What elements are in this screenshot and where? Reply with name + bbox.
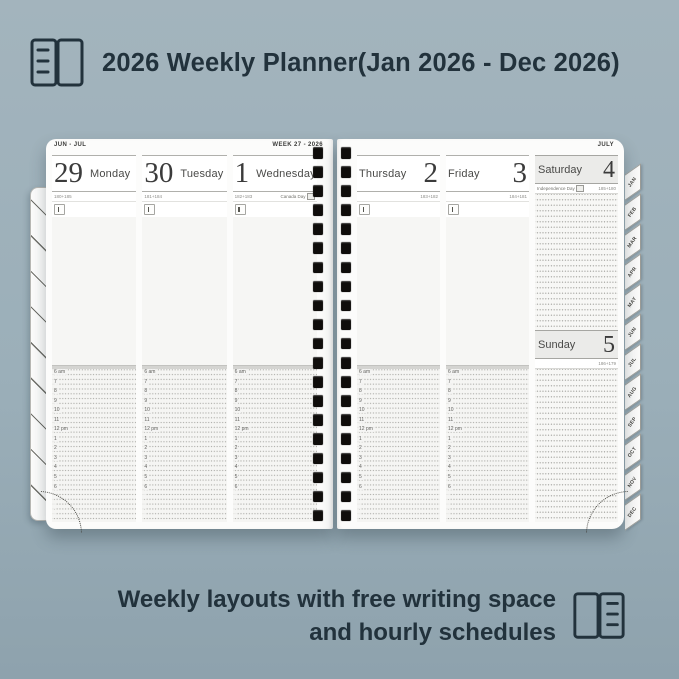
hour-label: 3 — [448, 455, 452, 461]
hour-label: 9 — [359, 398, 363, 404]
hour-label: 6 am — [235, 369, 247, 375]
hour-label: 7 — [235, 379, 239, 385]
binding-hole-icon — [313, 319, 323, 331]
date-number: 29 — [54, 159, 83, 188]
binding-hole-icon — [313, 395, 323, 407]
free-writing-area — [142, 217, 226, 365]
hour-label — [235, 503, 236, 509]
hour-row: 11 — [52, 417, 136, 427]
hour-label: 1 — [144, 436, 148, 442]
date-number: 30 — [144, 159, 173, 188]
hour-row: 6 am — [142, 369, 226, 379]
hour-label: 8 — [448, 388, 452, 394]
hour-label — [448, 493, 449, 499]
binding-hole-icon — [313, 185, 323, 197]
binding-hole-icon — [313, 166, 323, 178]
binding-hole-icon — [341, 433, 351, 445]
hour-row: 7 — [446, 379, 529, 389]
open-book-icon — [28, 36, 86, 90]
binding-hole-icon — [313, 357, 323, 369]
hour-row: 3 — [233, 455, 317, 465]
hour-label — [144, 512, 145, 518]
hour-label: 12 pm — [235, 426, 250, 432]
footer-line-1: Weekly layouts with free writing space — [118, 583, 556, 616]
open-book-icon — [571, 589, 627, 643]
hour-row: 9 — [52, 398, 136, 408]
hour-label: 10 — [448, 407, 455, 413]
flag-icon — [576, 185, 584, 192]
binding-hole-icon — [313, 472, 323, 484]
binding-hole-icon — [341, 300, 351, 312]
hour-row: 1 — [142, 436, 226, 446]
footer-caption: Weekly layouts with free writing space a… — [118, 583, 556, 649]
hour-label: 1 — [235, 436, 239, 442]
binding-hole-icon — [313, 281, 323, 293]
hour-row: 11 — [446, 417, 529, 427]
hour-label: 11 — [359, 417, 365, 423]
sunday-header: Sunday 5 — [535, 330, 618, 359]
hour-label — [359, 493, 360, 499]
hour-label: 7 — [359, 379, 363, 385]
hour-label — [235, 493, 236, 499]
day-name: Wednesday — [256, 168, 316, 180]
hour-label: 2 — [359, 445, 363, 451]
binding-hole-icon — [341, 376, 351, 388]
hour-row: 6 — [446, 484, 529, 494]
spiral-binding-right — [341, 147, 351, 529]
date-number: 4 — [603, 158, 615, 182]
hour-row: 6 — [142, 484, 226, 494]
footer-line-2: and hourly schedules — [118, 616, 556, 649]
hour-row: 7 — [52, 379, 136, 389]
hourly-schedule: 6 am 7 8 9 10 11 12 pm 1 2 3 4 5 6 — [233, 369, 317, 522]
day-column: 2 Thursday 183+182 6 am 7 8 9 10 11 12 p… — [357, 155, 440, 522]
hour-row: 10 — [233, 407, 317, 417]
binding-hole-icon — [313, 242, 323, 254]
hour-row: 6 am — [52, 369, 136, 379]
hour-row — [446, 512, 529, 522]
hour-label: 8 — [235, 388, 239, 394]
day-count: 185+180 — [598, 186, 616, 191]
hour-label: 12 pm — [448, 426, 463, 432]
hour-label: 7 — [144, 379, 148, 385]
hour-row: 1 — [446, 436, 529, 446]
binding-hole-icon — [313, 338, 323, 350]
hour-row: 4 — [357, 464, 440, 474]
month-range-label: JUN - JUL — [54, 142, 86, 148]
binding-hole-icon — [341, 472, 351, 484]
binding-hole-icon — [341, 319, 351, 331]
day-column: 3 Friday 184+181 6 am 7 8 9 10 11 12 pm … — [446, 155, 529, 522]
date-number: 5 — [603, 333, 615, 357]
hour-row: 6 am — [233, 369, 317, 379]
binding-hole-icon — [313, 433, 323, 445]
hour-row: 9 — [233, 398, 317, 408]
hour-row: 6 — [233, 484, 317, 494]
hour-row: 12 pm — [357, 426, 440, 436]
day-count: 181+184 — [144, 194, 162, 199]
hour-label: 2 — [144, 445, 148, 451]
hour-label — [359, 512, 360, 518]
hour-label: 1 — [448, 436, 452, 442]
page-edge-stripes — [30, 187, 47, 521]
binding-hole-icon — [341, 510, 351, 522]
hour-row — [142, 493, 226, 503]
hour-row: 6 am — [446, 369, 529, 379]
hour-label: 8 — [359, 388, 363, 394]
hour-row: 4 — [233, 464, 317, 474]
hour-label: 4 — [448, 464, 452, 470]
binding-hole-icon — [341, 281, 351, 293]
day-column: 30 Tuesday 181+184 6 am 7 8 9 10 11 12 p… — [142, 155, 226, 522]
hour-row: 2 — [142, 445, 226, 455]
saturday-header: Saturday 4 — [535, 155, 618, 184]
hour-row: 11 — [233, 417, 317, 427]
hour-label — [235, 512, 236, 518]
hour-label: 9 — [448, 398, 452, 404]
hour-row: 8 — [446, 388, 529, 398]
note-box-icon — [144, 204, 155, 215]
day-column: 29 Monday 180+185 6 am 7 8 9 10 11 12 pm… — [52, 155, 136, 522]
hour-label: 10 — [144, 407, 151, 413]
day-name: Thursday — [359, 168, 406, 180]
day-subrow: 183+182 — [357, 192, 440, 202]
binding-hole-icon — [341, 166, 351, 178]
day-column: 1 Wednesday 182+183 Canada Day 6 am 7 8 … — [233, 155, 317, 522]
binding-hole-icon — [313, 376, 323, 388]
hour-row — [357, 512, 440, 522]
hour-row — [446, 503, 529, 513]
hour-row: 10 — [357, 407, 440, 417]
day-name: Sunday — [538, 339, 575, 351]
day-name: Saturday — [538, 164, 582, 176]
day-count: 183+182 — [420, 194, 438, 199]
footer: Weekly layouts with free writing space a… — [118, 583, 627, 649]
hour-label — [144, 493, 145, 499]
page-title: 2026 Weekly Planner(Jan 2026 - Dec 2026) — [102, 49, 620, 78]
hour-label — [448, 503, 449, 509]
binding-hole-icon — [341, 338, 351, 350]
day-header: 29 Monday — [52, 155, 136, 192]
hour-label: 11 — [448, 417, 454, 423]
binding-hole-icon — [313, 453, 323, 465]
hour-row: 8 — [357, 388, 440, 398]
hour-label — [144, 503, 145, 509]
hour-label: 10 — [54, 407, 61, 413]
date-number: 3 — [513, 159, 528, 188]
binding-hole-icon — [313, 510, 323, 522]
hour-row: 2 — [446, 445, 529, 455]
hour-row: 5 — [233, 474, 317, 484]
day-name: Friday — [448, 168, 480, 180]
month-label: JULY — [598, 142, 614, 148]
hour-label: 5 — [359, 474, 363, 480]
binding-hole-icon — [341, 414, 351, 426]
hour-row: 11 — [357, 417, 440, 427]
day-count: 182+183 — [235, 194, 253, 199]
hour-label — [359, 503, 360, 509]
hour-label: 12 pm — [359, 426, 374, 432]
free-writing-area — [446, 217, 529, 365]
hour-row: 8 — [52, 388, 136, 398]
hour-label: 10 — [235, 407, 242, 413]
day-subrow: 182+183 Canada Day — [233, 192, 317, 202]
header: 2026 Weekly Planner(Jan 2026 - Dec 2026) — [28, 36, 620, 90]
binding-hole-icon — [341, 262, 351, 274]
hour-label: 3 — [144, 455, 148, 461]
hour-label: 6 am — [359, 369, 371, 375]
day-header: 2 Thursday — [357, 155, 440, 192]
hour-row: 9 — [357, 398, 440, 408]
hour-row: 2 — [233, 445, 317, 455]
holiday-text: Canada Day — [280, 194, 305, 199]
hour-row — [357, 503, 440, 513]
date-number: 2 — [424, 159, 439, 188]
day-count: 184+181 — [509, 194, 527, 199]
planner-left-page: JUN - JUL WEEK 27 - 2026 29 Monday 180+1… — [46, 139, 333, 529]
hourly-schedule: 6 am 7 8 9 10 11 12 pm 1 2 3 4 5 6 — [357, 369, 440, 522]
hour-row: 5 — [52, 474, 136, 484]
hour-row: 5 — [142, 474, 226, 484]
binding-hole-icon — [341, 204, 351, 216]
hour-label: 9 — [54, 398, 58, 404]
saturday-subrow: Independence Day 185+180 — [535, 184, 618, 194]
binding-hole-icon — [313, 204, 323, 216]
hour-row: 3 — [446, 455, 529, 465]
binding-hole-icon — [341, 223, 351, 235]
binding-hole-icon — [341, 242, 351, 254]
hour-label: 3 — [54, 455, 58, 461]
hour-label: 6 — [448, 484, 452, 490]
spiral-binding-left — [313, 147, 323, 529]
hour-label — [448, 512, 449, 518]
right-day-columns: 2 Thursday 183+182 6 am 7 8 9 10 11 12 p… — [357, 155, 618, 522]
hour-label: 5 — [448, 474, 452, 480]
hour-row: 4 — [446, 464, 529, 474]
hour-row: 7 — [357, 379, 440, 389]
binding-hole-icon — [341, 357, 351, 369]
hour-row: 9 — [446, 398, 529, 408]
binding-hole-icon — [341, 185, 351, 197]
hour-label: 11 — [235, 417, 241, 423]
hour-row: 4 — [142, 464, 226, 474]
binding-hole-icon — [341, 147, 351, 159]
day-header: 30 Tuesday — [142, 155, 226, 192]
hour-row — [142, 503, 226, 513]
binding-hole-icon — [313, 147, 323, 159]
hour-row: 12 pm — [142, 426, 226, 436]
day-subrow: 184+181 — [446, 192, 529, 202]
binding-hole-icon — [313, 414, 323, 426]
date-number: 1 — [235, 159, 250, 188]
binding-hole-icon — [313, 491, 323, 503]
free-writing-area — [357, 217, 440, 365]
hour-label: 2 — [235, 445, 239, 451]
hour-label: 8 — [54, 388, 58, 394]
binding-hole-icon — [313, 223, 323, 235]
hour-label: 4 — [359, 464, 363, 470]
hour-row: 3 — [52, 455, 136, 465]
sunday-subrow: 186+179 — [535, 359, 618, 369]
binding-hole-icon — [341, 453, 351, 465]
hour-row: 12 pm — [52, 426, 136, 436]
free-writing-area — [233, 217, 317, 365]
hour-row: 1 — [52, 436, 136, 446]
hour-label: 5 — [54, 474, 58, 480]
hour-row — [233, 512, 317, 522]
hour-label: 1 — [54, 436, 58, 442]
hour-row: 10 — [446, 407, 529, 417]
hour-label: 6 — [235, 484, 239, 490]
hour-label: 7 — [448, 379, 452, 385]
hour-label: 9 — [144, 398, 148, 404]
hour-row — [142, 512, 226, 522]
binding-hole-icon — [313, 300, 323, 312]
day-count: 180+185 — [54, 194, 72, 199]
day-header: 1 Wednesday — [233, 155, 317, 192]
hour-row: 8 — [142, 388, 226, 398]
hour-row: 5 — [446, 474, 529, 484]
day-count: 186+179 — [598, 361, 616, 366]
weekend-column: Saturday 4 Independence Day 185+180 Sund… — [535, 155, 618, 522]
free-writing-area — [52, 217, 136, 365]
day-name: Tuesday — [180, 168, 223, 180]
hour-label: 7 — [54, 379, 58, 385]
hour-label: 3 — [359, 455, 363, 461]
hour-row: 9 — [142, 398, 226, 408]
hour-row: 4 — [52, 464, 136, 474]
hour-label: 5 — [235, 474, 239, 480]
hour-label: 1 — [359, 436, 363, 442]
right-page-header: JULY — [345, 142, 614, 148]
hour-row: 6 am — [357, 369, 440, 379]
binding-hole-icon — [313, 262, 323, 274]
hour-label: 6 — [144, 484, 148, 490]
holiday-label: Independence Day — [537, 185, 584, 192]
hourly-schedule: 6 am 7 8 9 10 11 12 pm 1 2 3 4 5 6 — [446, 369, 529, 522]
hour-label: 4 — [235, 464, 239, 470]
hour-row: 5 — [357, 474, 440, 484]
hour-label: 3 — [235, 455, 239, 461]
day-header: 3 Friday — [446, 155, 529, 192]
hour-label: 4 — [144, 464, 148, 470]
hour-label: 6 am — [144, 369, 156, 375]
weekly-planner-spread: JAN FEB MAR APR MAY JUN JUL AUG SEP OCT … — [46, 139, 626, 529]
hour-label: 6 — [359, 484, 363, 490]
day-subrow: 180+185 — [52, 192, 136, 202]
corner-perforation — [584, 489, 628, 533]
hour-label: 8 — [144, 388, 148, 394]
hour-row: 8 — [233, 388, 317, 398]
hour-label: 2 — [448, 445, 452, 451]
hour-label: 12 pm — [54, 426, 69, 432]
hour-label: 5 — [144, 474, 148, 480]
left-page-header: JUN - JUL WEEK 27 - 2026 — [54, 142, 323, 148]
note-box-icon — [54, 204, 65, 215]
hour-row — [233, 493, 317, 503]
hour-row: 7 — [233, 379, 317, 389]
note-box-icon — [235, 204, 246, 215]
planner-right-page: JULY 2 Thursday 183+182 6 am 7 8 9 10 11… — [337, 139, 624, 529]
hour-row: 3 — [357, 455, 440, 465]
hour-row: 12 pm — [233, 426, 317, 436]
hour-row: 12 pm — [446, 426, 529, 436]
hour-row — [357, 493, 440, 503]
hour-row: 10 — [142, 407, 226, 417]
hour-row — [446, 493, 529, 503]
hour-label: 12 pm — [144, 426, 159, 432]
hour-row: 10 — [52, 407, 136, 417]
hour-label: 10 — [359, 407, 366, 413]
hour-row: 2 — [357, 445, 440, 455]
hour-label: 6 am — [448, 369, 460, 375]
hour-label: 4 — [54, 464, 58, 470]
day-subrow: 181+184 — [142, 192, 226, 202]
hour-row: 1 — [233, 436, 317, 446]
hour-row: 6 — [357, 484, 440, 494]
holiday-label: Canada Day — [280, 193, 315, 200]
hour-row: 2 — [52, 445, 136, 455]
hour-label: 9 — [235, 398, 239, 404]
hour-label: 11 — [54, 417, 60, 423]
holiday-text: Independence Day — [537, 186, 575, 191]
hour-label: 2 — [54, 445, 58, 451]
binding-hole-icon — [341, 395, 351, 407]
hour-label: 11 — [144, 417, 150, 423]
hour-row — [233, 503, 317, 513]
corner-perforation — [40, 489, 84, 533]
hourly-schedule: 6 am 7 8 9 10 11 12 pm 1 2 3 4 5 6 — [142, 369, 226, 522]
hour-row: 3 — [142, 455, 226, 465]
day-name: Monday — [90, 168, 130, 180]
note-box-icon — [448, 204, 459, 215]
hour-row: 1 — [357, 436, 440, 446]
hour-row: 7 — [142, 379, 226, 389]
hour-label: 6 am — [54, 369, 66, 375]
note-box-icon — [359, 204, 370, 215]
left-day-columns: 29 Monday 180+185 6 am 7 8 9 10 11 12 pm… — [52, 155, 317, 522]
saturday-writing-area — [535, 194, 618, 330]
binding-hole-icon — [341, 491, 351, 503]
month-tab-strip: JAN FEB MAR APR MAY JUN JUL AUG SEP OCT … — [625, 169, 640, 529]
hour-row: 11 — [142, 417, 226, 427]
